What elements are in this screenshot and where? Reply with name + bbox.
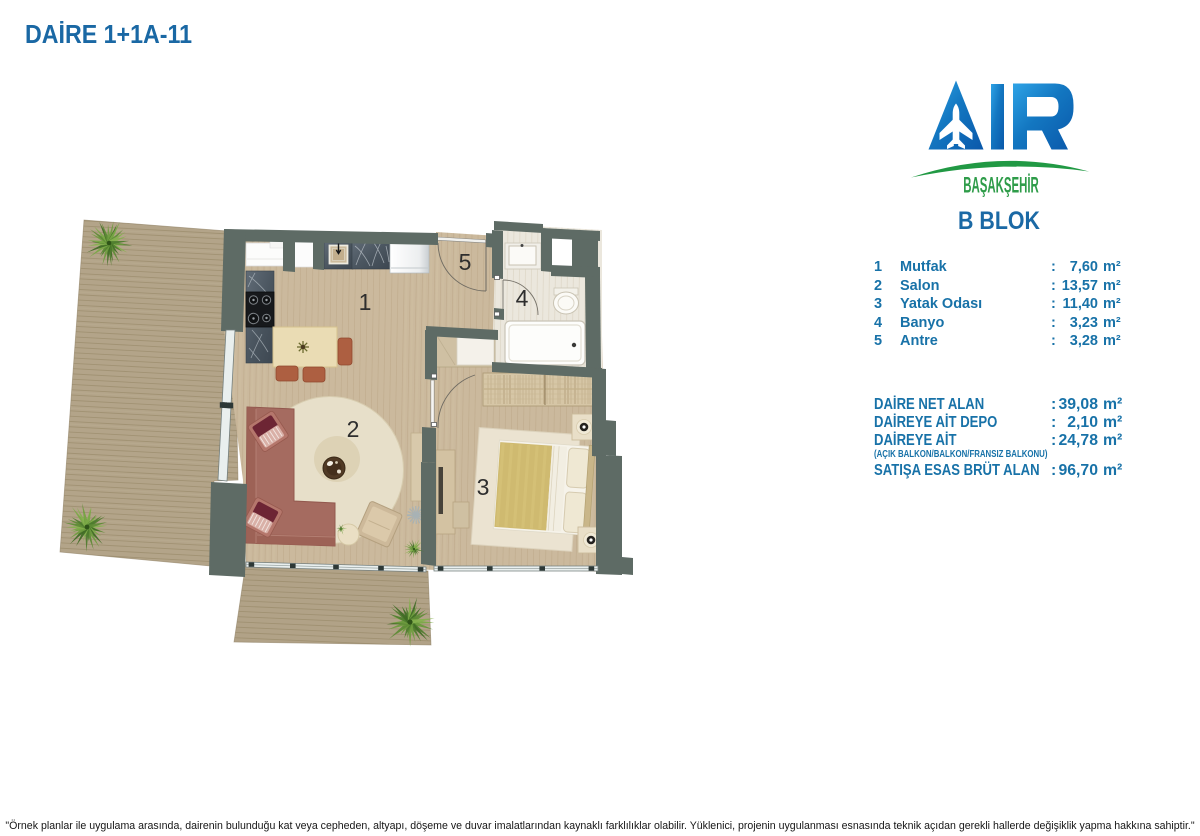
svg-text:2: 2 — [347, 416, 360, 442]
svg-text:BAŞAKŞEHİR: BAŞAKŞEHİR — [963, 172, 1039, 197]
svg-text:1: 1 — [359, 289, 372, 315]
svg-text:3: 3 — [477, 474, 490, 500]
svg-text:4: 4 — [516, 285, 529, 311]
svg-text:B BLOK: B BLOK — [958, 206, 1040, 234]
svg-text:5: 5 — [459, 249, 472, 275]
